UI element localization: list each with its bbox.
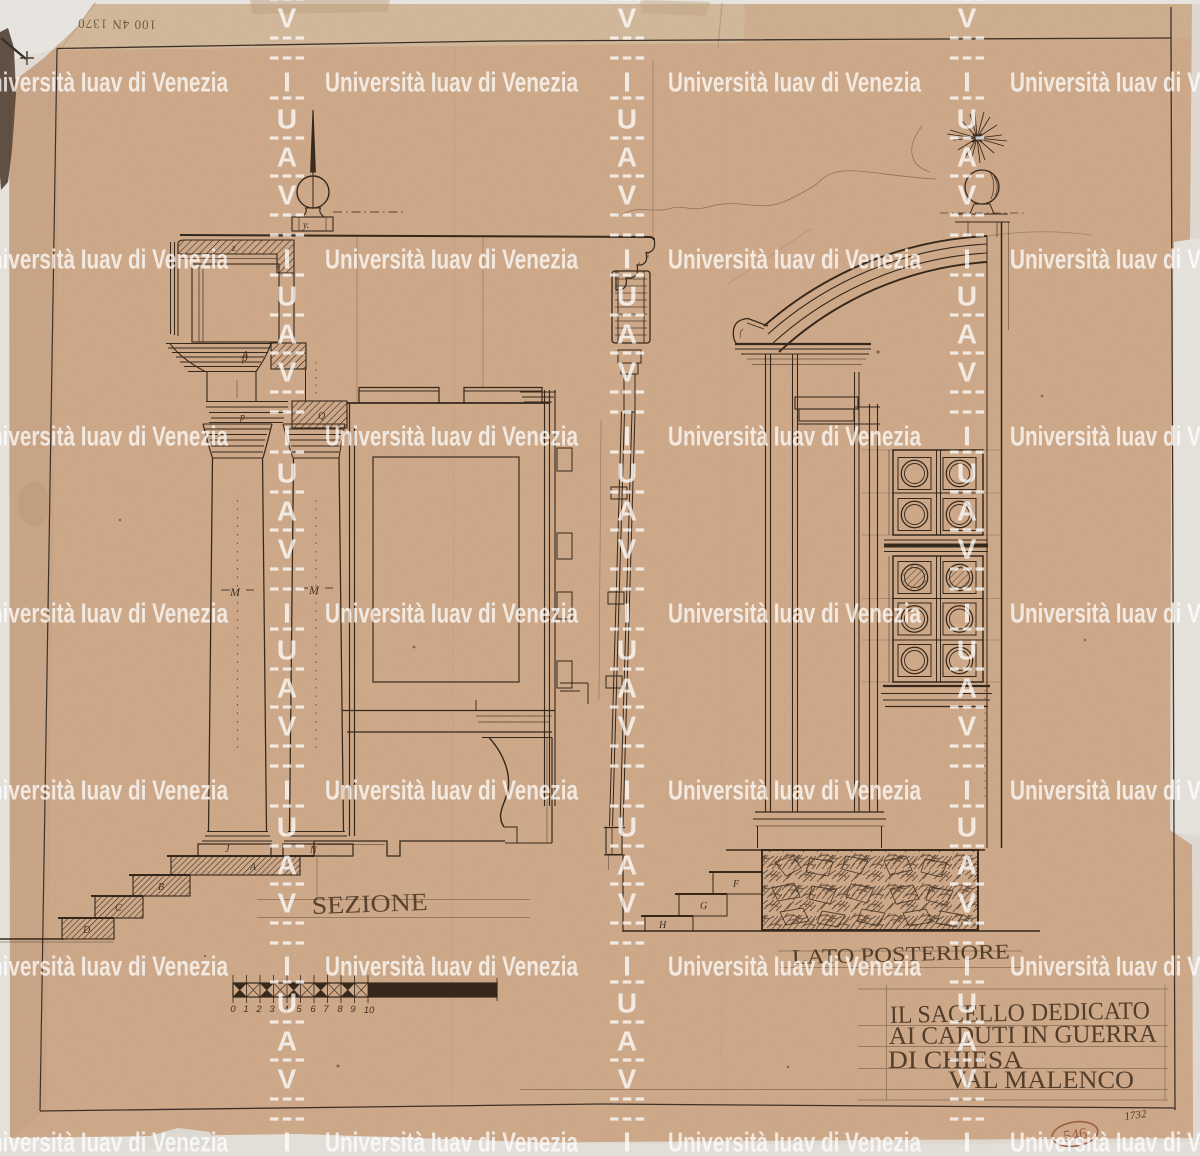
svg-text:7: 7: [323, 1004, 329, 1015]
svg-text:6: 6: [310, 1004, 316, 1015]
svg-text:SEZIONE: SEZIONE: [311, 889, 428, 920]
svg-text:A: A: [241, 350, 249, 361]
svg-text:8: 8: [337, 1004, 343, 1015]
svg-text:100 4N 1370: 100 4N 1370: [77, 16, 156, 32]
svg-text:M: M: [308, 583, 320, 597]
svg-text:9: 9: [350, 1004, 356, 1015]
svg-text:3: 3: [269, 1004, 275, 1015]
svg-text:F: F: [732, 879, 740, 890]
svg-text:B: B: [158, 882, 164, 893]
svg-text:0: 0: [230, 1004, 236, 1015]
svg-text:AI CADUTI IN GUERRA: AI CADUTI IN GUERRA: [889, 1021, 1157, 1050]
svg-text:2: 2: [255, 1004, 262, 1015]
svg-text:5: 5: [296, 1004, 302, 1015]
svg-text:10: 10: [364, 1005, 375, 1016]
svg-text:p: p: [239, 412, 245, 423]
svg-text:G: G: [700, 901, 707, 912]
svg-text:M: M: [229, 585, 241, 599]
svg-text:C: C: [115, 903, 122, 914]
svg-text:D: D: [82, 925, 91, 936]
svg-text:H: H: [658, 920, 667, 931]
svg-text:z: z: [231, 243, 236, 254]
svg-text:J: J: [225, 844, 230, 855]
svg-text:y.: y.: [302, 220, 309, 231]
svg-text:A: A: [249, 862, 257, 873]
svg-text:1: 1: [243, 1004, 248, 1015]
